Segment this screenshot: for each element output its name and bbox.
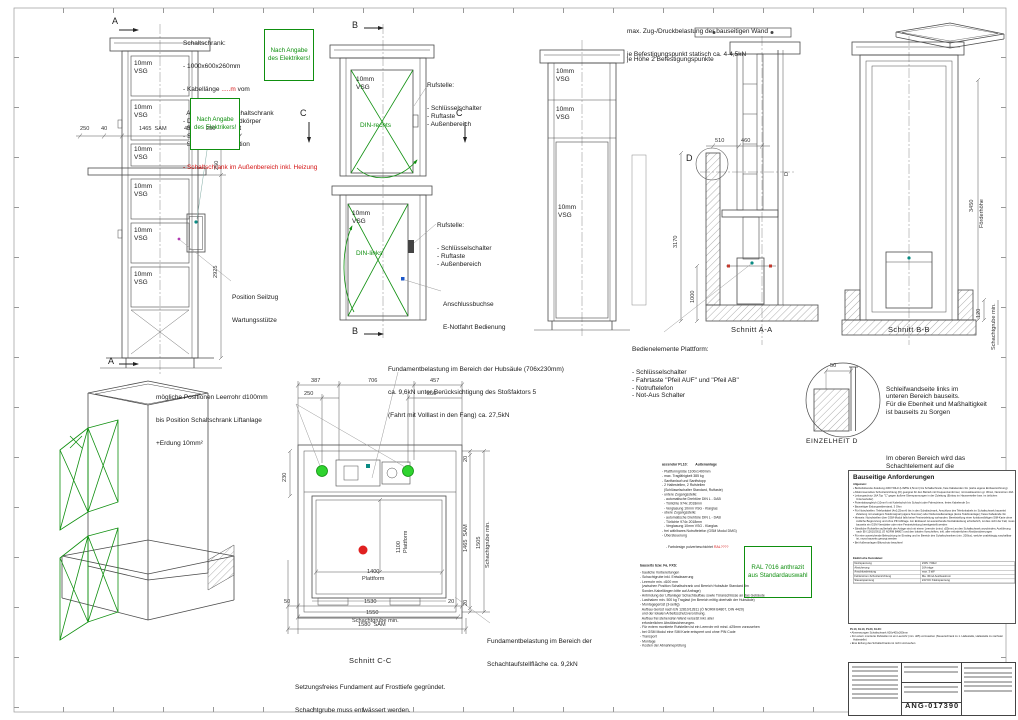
note-fixing-points: je Höhe 2 Befestigungspunkte (627, 40, 714, 79)
panel-title: Bauseitige Anforderungen (853, 474, 1015, 481)
note-anschlussbuchse: Anschlussbuchse E-Notfahrt Bedienung (443, 285, 506, 347)
marker-a-bottom: A (108, 356, 114, 367)
marker-d: D (686, 153, 693, 164)
spec-bauseits-lines: - bauliche Vorbereitungen- Schachtgrube … (640, 571, 834, 649)
dim: 1505 (476, 537, 483, 549)
glass-label: 10mmVSG (558, 204, 576, 220)
dim: 120 (976, 309, 983, 318)
spec-lines: - Plattformgröße 1100x1400mm- max. Tragf… (662, 470, 856, 538)
dim: 460 (741, 138, 750, 145)
dim: 40 (101, 126, 107, 133)
dim: 510 (715, 138, 724, 145)
dim: Schachtgrube min. (485, 521, 492, 568)
note-fundament-hubsaeule: Fundamentbelastung im Bereich der Hubsäu… (388, 350, 564, 436)
table-title: Elektrische Kenndaten: (853, 557, 1015, 560)
note-elektriker-box-1: Nach Angabedes Elektrikers! (264, 29, 314, 81)
dim: 20 (448, 599, 454, 606)
glass-label: 10mmVSG (556, 68, 574, 84)
dim-platform-depth: 1100Plattform (383, 531, 423, 553)
glass-label: 10mmVSG (134, 146, 152, 162)
dim: 1465 SAM (463, 524, 470, 552)
label-schnitt-bb: Schnitt B-B (888, 325, 930, 334)
dim: 50 (830, 363, 836, 370)
dim: 250 (427, 391, 436, 398)
marker-c-right: C (456, 108, 463, 119)
spec-bauseits-header: bauseits bzw. Fa. FXS: (640, 564, 834, 569)
dim: 387 (311, 378, 320, 385)
label-din-rechts: DIN-rechts (360, 122, 391, 130)
view-door-upper (330, 45, 434, 178)
marker-b-bottom: B (352, 326, 358, 337)
note-rufstelle-upper: Rufstelle: - Schlüsselschalter- Ruftaste… (427, 66, 482, 144)
dim: 1550 (366, 610, 378, 617)
marker-c-left: C (300, 108, 307, 119)
pl-notes: PL10, KL10, PL20, KL20: Abmessungen Scha… (850, 628, 1012, 646)
note-leerrohr: mögliche Positionen Leerrohr d100mm bis … (156, 378, 268, 464)
dim: 706 (368, 378, 377, 385)
glass-label: 10mmVSG (134, 183, 152, 199)
dim: 2925 (213, 266, 220, 278)
title-block-center-cells: ANG-017390 (901, 663, 962, 715)
drawing-sheet: Schaltschrank: - 1000x600x260mm - Kabell… (0, 0, 1018, 720)
dim: 50 (284, 599, 290, 606)
elektrische-kenndaten-table: Netzspannung230V / 50HzAbsicherung16A tr… (853, 561, 1015, 583)
label-einzelheit-d: EINZELHEIT D (806, 438, 858, 446)
panel-bullets: Betriebsbereite Zuleitung 230V 50Hz (L/N… (853, 487, 1015, 545)
glass-label: 10mmVSG (134, 227, 152, 243)
glass-label: 10mmVSG (134, 60, 152, 76)
dim-platform-width: 1400Plattform (362, 556, 384, 596)
note-rufstelle-lower: Rufstelle: - Schlüsselschalter- Ruftaste… (437, 206, 492, 284)
marker-d-small: D (784, 172, 791, 176)
dim: 250 (214, 161, 221, 170)
note-elektriker-box-2: Nach Angabedes Elektrikers! (190, 98, 240, 150)
dim: 1465 SAM (139, 126, 167, 133)
label-schnitt-aa: Schnitt A-A (731, 325, 773, 334)
label-schnitt-cc: Schnitt C-C (349, 656, 392, 665)
dim: 250 (206, 126, 215, 133)
dim: 250 (80, 126, 89, 133)
title-block: ANG-017390 (848, 662, 1016, 716)
dim: 1580 SAM (358, 622, 386, 629)
marker-a-top: A (112, 16, 118, 27)
dim: 230 (282, 473, 289, 482)
panel-table-wrap: Elektrische Kenndaten: Netzspannung230V … (853, 557, 1015, 584)
panel-subtitle: Allgemein: (853, 483, 1015, 486)
dim: 20 (463, 600, 470, 606)
dim: 457 (430, 378, 439, 385)
detail-d (806, 363, 880, 437)
drawing-number: ANG-017390 (905, 701, 959, 710)
title-block-revision-cells (849, 663, 902, 715)
dim: 3450 (969, 200, 976, 212)
dim: 3170 (673, 236, 680, 248)
dim: Schachtgrube min. (991, 303, 998, 350)
glass-label: 10mmVSG (134, 271, 152, 287)
section-aa (632, 42, 818, 321)
section-marker-b (364, 28, 383, 334)
note-seilzug: Position Seilzug Wartungsstütze (232, 278, 278, 340)
glass-label: 10mmVSG (556, 106, 574, 122)
dim: Förderhöhe (979, 199, 986, 228)
panel-bauseitige-anforderungen: Bauseitige Anforderungen Allgemein: Betr… (848, 470, 1016, 624)
glass-label: 10mmVSG (352, 210, 370, 226)
note-fundament-schacht: Fundamentbelastung im Bereich der Schach… (487, 622, 592, 684)
dim: 250 (304, 391, 313, 398)
pl-bullets: Abmessungen Schaltschrank 600x400x260mmF… (850, 631, 1012, 645)
dim: 40 (184, 126, 190, 133)
dim: 1000 (690, 291, 697, 303)
glass-label: 10mmVSG (134, 104, 152, 120)
label-din-links: DIN-links (356, 250, 382, 258)
glass-label: 10mmVSG (356, 76, 374, 92)
dim: 20 (463, 456, 470, 462)
spec-header: ascendor PL10: Außenanlage (662, 463, 856, 468)
marker-b-top: B (352, 20, 358, 31)
title-block-company-cell (961, 663, 1015, 715)
note-bedienelemente: Bedienelemente Plattform: - Schlüsselsch… (632, 330, 739, 416)
note-fundament-bottom: Setzungsfreies Fundament auf Frosttiefe … (295, 668, 445, 720)
dim: 1530 (364, 599, 376, 606)
